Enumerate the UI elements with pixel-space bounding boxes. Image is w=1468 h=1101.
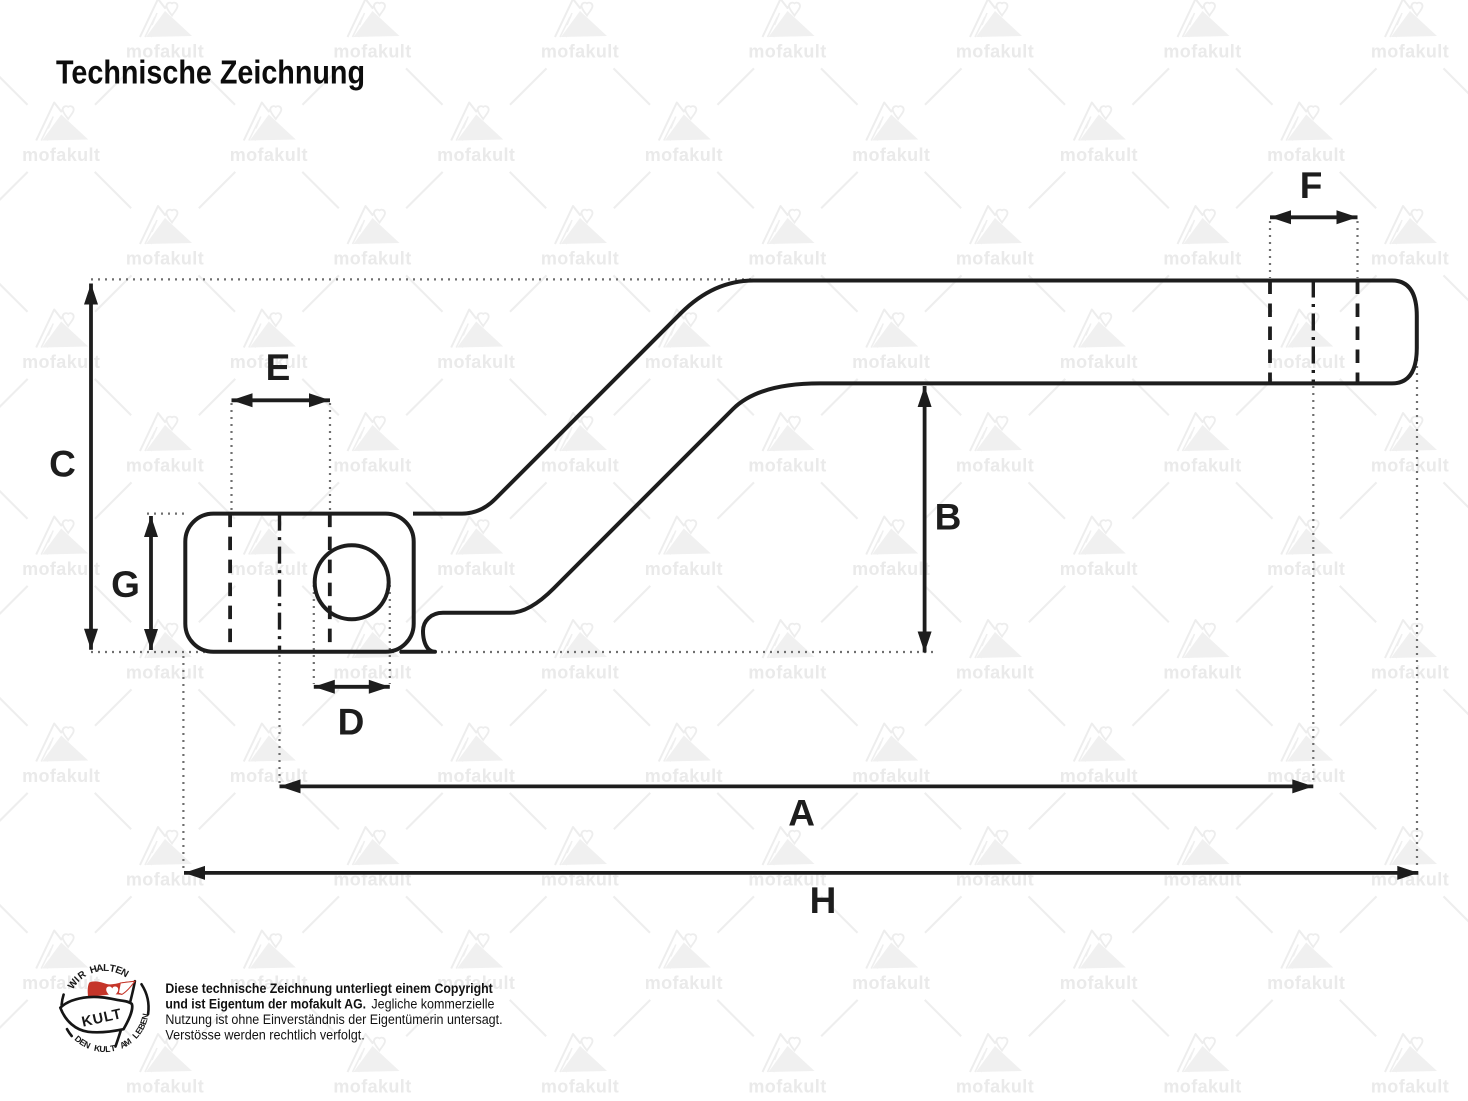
svg-text:Jegliche kommerzielle: Jegliche kommerzielle [371, 997, 494, 1012]
svg-text:F: F [1300, 165, 1323, 206]
svg-text:H: H [810, 880, 837, 921]
svg-text:Diese technische Zeichnung unt: Diese technische Zeichnung unterliegt ei… [165, 981, 493, 996]
svg-text:Verstösse werden rechtlich ver: Verstösse werden rechtlich verfolgt. [165, 1028, 364, 1043]
svg-text:E: E [266, 347, 291, 388]
svg-text:A: A [788, 793, 815, 834]
svg-text:D: D [338, 702, 365, 743]
svg-text:Nutzung ist ohne Einverständni: Nutzung ist ohne Einverständnis der Eige… [165, 1012, 502, 1027]
svg-text:und ist Eigentum der mofakult: und ist Eigentum der mofakult AG. [165, 997, 366, 1012]
svg-text:C: C [49, 444, 76, 485]
svg-text:G: G [111, 564, 140, 605]
svg-text:Technische Zeichnung: Technische Zeichnung [56, 55, 365, 92]
svg-text:B: B [935, 497, 962, 538]
